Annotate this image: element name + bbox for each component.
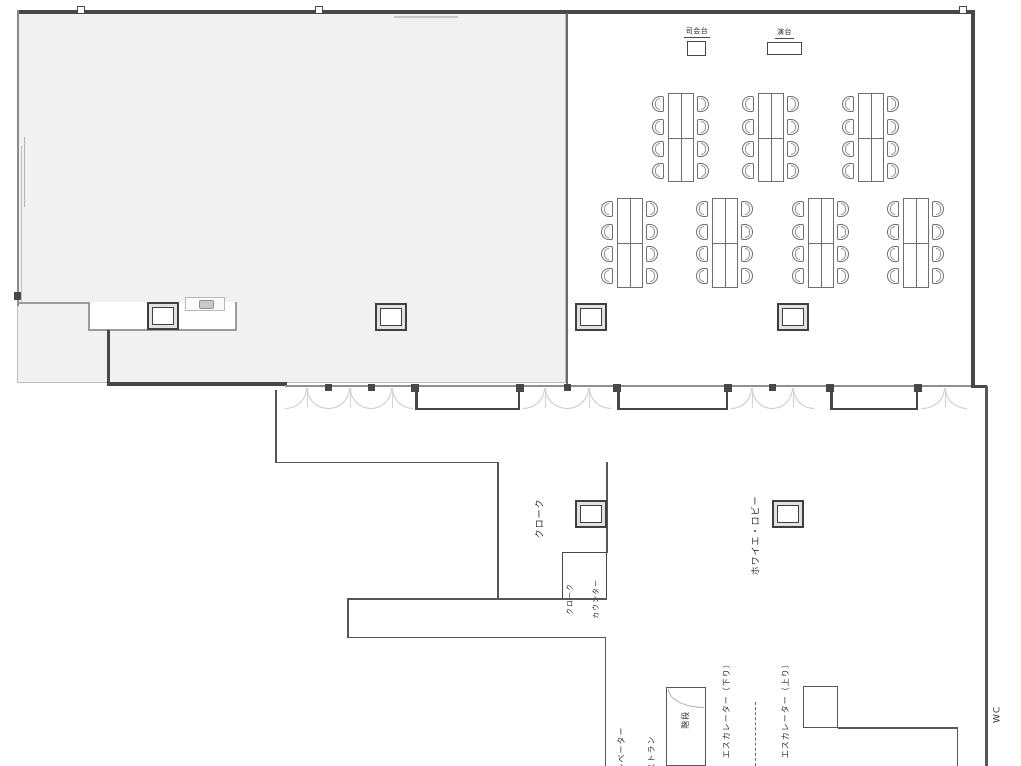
table-group-r2-4-chair-left-4: [887, 268, 899, 284]
wall-corridor-wall-top: [347, 598, 607, 600]
door-pair-7-leaf-left: [772, 388, 793, 409]
wall-room-divider: [566, 13, 568, 385]
podium-label: 演台: [757, 27, 812, 39]
top-wall-post-2: [315, 6, 323, 14]
table-group-r2-2-chair-left-4: [696, 268, 708, 284]
entrance-alcove-1-bottom: [415, 408, 520, 411]
pillar-1: [147, 302, 179, 330]
wall-stage-recess-wall-left: [88, 302, 90, 330]
wall-lobby-wall-top: [275, 462, 498, 464]
table-group-r1-3-chair-left-2: [842, 119, 854, 135]
table-group-r2-1-chair-left-1: [601, 201, 613, 217]
door-pair-1-meeting-line: [307, 388, 308, 408]
stage-console-icon: [199, 300, 214, 309]
door-pair-4-leaf-left: [523, 388, 545, 409]
wall-corridor-wall-left: [347, 598, 349, 638]
foyer-lobby-label: ホワイエ・ロビー: [752, 465, 763, 605]
table-group-r1-1-chair-left-2: [652, 119, 664, 135]
wall-escalator-wall-v: [957, 727, 959, 766]
table-group-r1-1-chair-left-4: [652, 163, 664, 179]
entrance-alcove-2-post-l: [613, 384, 621, 392]
table-group-r2-3-chair-left-1: [792, 201, 804, 217]
door-pair-8-meeting-line: [945, 388, 946, 408]
table-group-r1-1-chair-left-1: [652, 96, 664, 112]
top-wall-post-1: [77, 6, 85, 14]
wall-hall-bottom-wall: [107, 382, 287, 386]
table-group-r2-2-chair-left-2: [696, 224, 708, 240]
stairs-label: 階段: [681, 650, 691, 766]
table-group-r2-2-chair-left-1: [696, 201, 708, 217]
wall-ceiling-beam: [394, 16, 458, 18]
elevator-line1: ーエレベーター: [617, 688, 627, 766]
door-pair-4-leaf-right: [545, 388, 567, 409]
table-group-r2-3-chair-left-3: [792, 246, 804, 262]
elevator-restaurant-label: ーエレベーター レストラン: [597, 688, 677, 766]
pillar-5: [575, 500, 607, 528]
door-pair-7-leaf-right: [793, 388, 814, 409]
pillar-4: [777, 303, 809, 331]
table-group-r1-3-chair-left-4: [842, 163, 854, 179]
table-group-r1-2-chair-left-4: [742, 163, 754, 179]
wall-lobby-right-wall: [985, 386, 988, 766]
door-pair-3-meeting-line: [392, 388, 393, 408]
table-group-r2-1-table: [617, 198, 643, 288]
entrance-alcove-3-post-r: [914, 384, 922, 392]
wall-left-wall-detail: [24, 137, 25, 207]
escalator-up-label: エスカレーター（上り）: [781, 639, 791, 766]
table-group-r1-1-chair-left-3: [652, 141, 664, 157]
door-pair-5-leaf-right: [589, 388, 611, 409]
wall-left-partition-wall: [17, 302, 88, 304]
door-pair-1-leaf-right: [307, 388, 329, 409]
table-group-r1-3-chair-left-1: [842, 96, 854, 112]
escalator-down-label: エスカレーター（下り）: [722, 639, 732, 766]
podium-box: [767, 42, 802, 55]
door-pair-8-leaf-right: [945, 388, 968, 409]
pillar-3: [575, 303, 607, 331]
pillar-2: [375, 303, 407, 331]
table-group-r1-3-chair-left-3: [842, 141, 854, 157]
escalator-block: [803, 686, 838, 728]
table-group-r2-2-table: [712, 198, 738, 288]
wall-left-wall-inner: [21, 146, 22, 304]
wall-stage-recess-wall-right: [235, 302, 237, 330]
wall-lobby-wall-left: [275, 390, 277, 463]
table-group-r1-2-table: [758, 93, 784, 182]
door-pair-4-meeting-line: [545, 388, 546, 408]
door-pair-5-leaf-left: [567, 388, 589, 409]
door-pair-2-meeting-line: [350, 388, 351, 408]
door-pair-6-leaf-left: [731, 388, 752, 409]
wc-label: WC: [993, 644, 1004, 766]
door-pair-2-leaf-right: [350, 388, 372, 409]
table-group-r1-2-chair-left-2: [742, 119, 754, 135]
table-group-r2-4-chair-left-1: [887, 201, 899, 217]
floor-plan: 司会台 演台 クローク ホワイエ・ロビー クローク カウンター ーエレベーター …: [0, 0, 1021, 766]
wall-escalator-wall-h: [838, 727, 958, 729]
wall-left-wall: [17, 10, 19, 306]
door-pair-7-meeting-line: [793, 388, 794, 408]
entrance-alcove-2-bottom: [617, 408, 728, 411]
wall-cloak-wall-left: [497, 462, 499, 599]
mc-stand-label: 司会台: [668, 26, 726, 38]
cloak-label: クローク: [536, 448, 547, 588]
door-pair-2-leaf-left: [328, 388, 350, 409]
door-pair-3-leaf-left: [371, 388, 392, 409]
table-group-r2-4-chair-left-3: [887, 246, 899, 262]
table-group-r1-3-table: [858, 93, 884, 182]
wall-top-wall: [17, 10, 973, 14]
mc-stand-box: [687, 41, 706, 56]
door-pair-5-meeting-line: [589, 388, 590, 408]
wall-banquet-bottom-line: [285, 385, 973, 387]
wall-right-wall-upper: [971, 10, 975, 387]
table-group-r2-3-chair-left-4: [792, 268, 804, 284]
top-wall-post-3: [959, 6, 967, 14]
entrance-alcove-3-bottom: [830, 408, 918, 411]
table-group-r1-2-chair-left-3: [742, 141, 754, 157]
table-group-r2-3-table: [808, 198, 834, 288]
pillar-6: [772, 500, 804, 528]
entrance-alcove-3-post-l: [826, 384, 834, 392]
table-group-r2-2-chair-left-3: [696, 246, 708, 262]
door-pair-8-leaf-left: [922, 388, 945, 409]
door-pair-6-leaf-right: [752, 388, 773, 409]
door-pair-3-leaf-right: [392, 388, 413, 409]
table-group-r2-3-chair-left-2: [792, 224, 804, 240]
table-group-r2-4-table: [903, 198, 929, 288]
wall-corridor-wall-bottom: [347, 637, 606, 639]
restaurant-line2: レストラン: [647, 688, 657, 766]
wall-left-wall-cap: [14, 292, 21, 300]
table-group-r2-4-chair-left-2: [887, 224, 899, 240]
escalator-divider-dashed: [755, 702, 756, 766]
wall-lower-wall-vert: [605, 637, 607, 766]
wall-hall-bottom-wall-vert: [107, 330, 110, 384]
table-group-r2-1-chair-left-3: [601, 246, 613, 262]
door-pair-6-meeting-line: [752, 388, 753, 408]
table-group-r2-1-chair-left-4: [601, 268, 613, 284]
table-group-r1-1-table: [668, 93, 694, 182]
table-group-r2-1-chair-left-2: [601, 224, 613, 240]
door-pair-1-leaf-left: [285, 388, 307, 409]
table-group-r1-2-chair-left-1: [742, 96, 754, 112]
